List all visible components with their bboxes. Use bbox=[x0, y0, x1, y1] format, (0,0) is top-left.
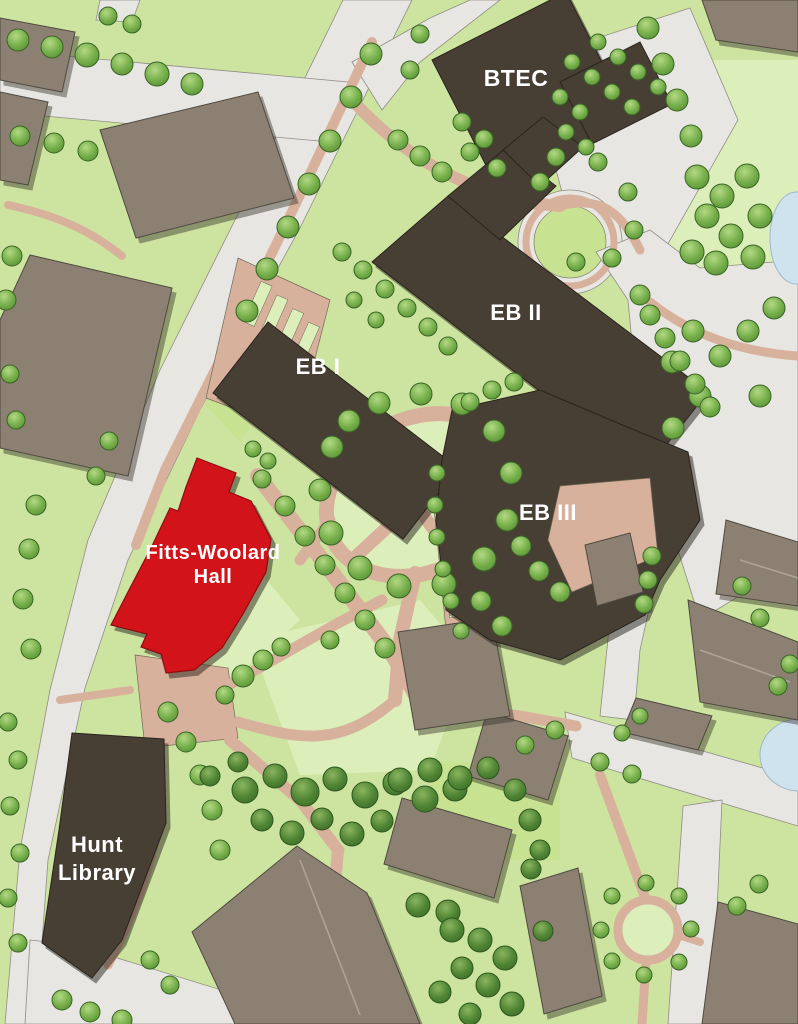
tree bbox=[401, 61, 419, 79]
tree bbox=[635, 595, 653, 613]
tree bbox=[418, 758, 442, 782]
tree bbox=[471, 591, 491, 611]
tree bbox=[751, 609, 769, 627]
tree bbox=[123, 15, 141, 33]
tree bbox=[546, 721, 564, 739]
tree bbox=[750, 875, 768, 893]
tree bbox=[338, 410, 360, 432]
tree bbox=[176, 732, 196, 752]
tree bbox=[643, 547, 661, 565]
tree bbox=[483, 420, 505, 442]
tree bbox=[680, 125, 702, 147]
tree bbox=[472, 547, 496, 571]
tree bbox=[461, 393, 479, 411]
tree bbox=[614, 725, 630, 741]
tree bbox=[516, 736, 534, 754]
tree bbox=[749, 385, 771, 407]
tree bbox=[476, 973, 500, 997]
tree bbox=[637, 17, 659, 39]
label-btec: BTEC bbox=[484, 65, 549, 91]
tree bbox=[652, 53, 674, 75]
tree bbox=[263, 764, 287, 788]
tree bbox=[505, 373, 523, 391]
tree bbox=[232, 665, 254, 687]
tree bbox=[321, 631, 339, 649]
tree bbox=[388, 768, 412, 792]
tree bbox=[202, 800, 222, 820]
tree bbox=[533, 921, 553, 941]
tree bbox=[232, 777, 258, 803]
campus-map: BTEC EB II EB I EB III Fitts-Woolard Hal… bbox=[0, 0, 798, 1024]
tree bbox=[710, 184, 734, 208]
tree bbox=[245, 441, 261, 457]
tree bbox=[623, 765, 641, 783]
tree bbox=[410, 146, 430, 166]
tree bbox=[639, 571, 657, 589]
tree bbox=[630, 285, 650, 305]
tree bbox=[295, 526, 315, 546]
tree bbox=[7, 411, 25, 429]
label-fitts-woolard-line1: Fitts-Woolard bbox=[145, 542, 280, 564]
tree bbox=[662, 417, 684, 439]
tree bbox=[1, 797, 19, 815]
tree bbox=[632, 708, 648, 724]
tree bbox=[1, 365, 19, 383]
label-eb1: EB I bbox=[296, 354, 341, 379]
tree bbox=[210, 840, 230, 860]
tree bbox=[236, 300, 258, 322]
tree bbox=[333, 243, 351, 261]
tree bbox=[519, 809, 541, 831]
tree bbox=[360, 43, 382, 65]
tree bbox=[10, 126, 30, 146]
tree bbox=[589, 153, 607, 171]
tree bbox=[298, 173, 320, 195]
tree bbox=[521, 859, 541, 879]
tree bbox=[719, 224, 743, 248]
tree bbox=[291, 778, 319, 806]
tree bbox=[251, 809, 273, 831]
tree bbox=[636, 967, 652, 983]
tree bbox=[346, 292, 362, 308]
tree bbox=[429, 981, 451, 1003]
tree bbox=[260, 453, 276, 469]
tree bbox=[737, 320, 759, 342]
tree bbox=[309, 479, 331, 501]
building bbox=[702, 902, 798, 1024]
tree bbox=[619, 183, 637, 201]
tree bbox=[604, 953, 620, 969]
tree bbox=[500, 462, 522, 484]
tree bbox=[461, 143, 479, 161]
tree bbox=[578, 139, 594, 155]
tree bbox=[763, 297, 785, 319]
tree bbox=[709, 345, 731, 367]
tree bbox=[75, 43, 99, 67]
tree bbox=[682, 320, 704, 342]
tree bbox=[638, 875, 654, 891]
tree bbox=[429, 529, 445, 545]
tree bbox=[200, 766, 220, 786]
tree bbox=[504, 779, 526, 801]
tree bbox=[256, 258, 278, 280]
tree bbox=[368, 392, 390, 414]
tree bbox=[685, 165, 709, 189]
tree bbox=[666, 89, 688, 111]
tree bbox=[488, 159, 506, 177]
tree bbox=[427, 497, 443, 513]
tree bbox=[741, 245, 765, 269]
tree bbox=[453, 623, 469, 639]
tree bbox=[650, 79, 666, 95]
tree bbox=[558, 124, 574, 140]
tree bbox=[87, 467, 105, 485]
tree bbox=[547, 148, 565, 166]
label-eb3: EB III bbox=[519, 500, 577, 525]
tree bbox=[572, 104, 588, 120]
tree bbox=[700, 397, 720, 417]
tree bbox=[319, 130, 341, 152]
tree bbox=[0, 290, 16, 310]
tree bbox=[781, 655, 798, 673]
tree bbox=[253, 650, 273, 670]
tree bbox=[769, 677, 787, 695]
tree bbox=[26, 495, 46, 515]
tree bbox=[500, 992, 524, 1016]
tree bbox=[181, 73, 203, 95]
tree bbox=[9, 751, 27, 769]
tree bbox=[371, 810, 393, 832]
campus-map-svg: BTEC EB II EB I EB III Fitts-Woolard Hal… bbox=[0, 0, 798, 1024]
tree bbox=[375, 638, 395, 658]
tree bbox=[564, 54, 580, 70]
tree bbox=[593, 922, 609, 938]
tree bbox=[493, 946, 517, 970]
tree bbox=[319, 521, 343, 545]
tree bbox=[335, 583, 355, 603]
tree bbox=[406, 893, 430, 917]
tree bbox=[432, 162, 452, 182]
tree bbox=[410, 383, 432, 405]
tree bbox=[448, 766, 472, 790]
tree bbox=[321, 436, 343, 458]
tree bbox=[21, 639, 41, 659]
tree bbox=[80, 1002, 100, 1022]
tree bbox=[388, 130, 408, 150]
tree bbox=[311, 808, 333, 830]
tree bbox=[280, 821, 304, 845]
tree bbox=[584, 69, 600, 85]
tree bbox=[277, 216, 299, 238]
tree bbox=[671, 888, 687, 904]
tree bbox=[492, 616, 512, 636]
tree bbox=[0, 713, 17, 731]
tree bbox=[477, 757, 499, 779]
tree bbox=[733, 577, 751, 595]
tree bbox=[529, 561, 549, 581]
tree bbox=[52, 990, 72, 1010]
tree bbox=[552, 89, 568, 105]
tree bbox=[483, 381, 501, 399]
tree bbox=[603, 249, 621, 267]
tree bbox=[567, 253, 585, 271]
tree bbox=[704, 251, 728, 275]
tree bbox=[216, 686, 234, 704]
tree bbox=[695, 204, 719, 228]
tree bbox=[111, 53, 133, 75]
tree bbox=[7, 29, 29, 51]
tree bbox=[670, 351, 690, 371]
tree bbox=[610, 49, 626, 65]
tree bbox=[630, 64, 646, 80]
tree bbox=[604, 84, 620, 100]
tree bbox=[100, 432, 118, 450]
tree bbox=[9, 934, 27, 952]
tree bbox=[685, 374, 705, 394]
tree bbox=[655, 328, 675, 348]
tree bbox=[429, 465, 445, 481]
label-eb2: EB II bbox=[490, 300, 541, 325]
tree bbox=[145, 62, 169, 86]
tree bbox=[625, 221, 643, 239]
tree bbox=[435, 561, 451, 577]
tree bbox=[439, 337, 457, 355]
tree bbox=[44, 133, 64, 153]
tree bbox=[348, 556, 372, 580]
tree bbox=[728, 897, 746, 915]
tree bbox=[275, 496, 295, 516]
tree bbox=[683, 921, 699, 937]
tree bbox=[411, 25, 429, 43]
tree bbox=[78, 141, 98, 161]
tree bbox=[13, 589, 33, 609]
tree bbox=[531, 173, 549, 191]
tree bbox=[440, 918, 464, 942]
tree bbox=[323, 767, 347, 791]
tree bbox=[530, 840, 550, 860]
tree bbox=[99, 7, 117, 25]
tree bbox=[624, 99, 640, 115]
tree bbox=[640, 305, 660, 325]
tree bbox=[671, 954, 687, 970]
tree bbox=[368, 312, 384, 328]
tree bbox=[590, 34, 606, 50]
tree bbox=[158, 702, 178, 722]
tree bbox=[19, 539, 39, 559]
tree bbox=[354, 261, 372, 279]
label-fitts-woolard-line2: Hall bbox=[194, 566, 233, 588]
tree bbox=[680, 240, 704, 264]
tree bbox=[748, 204, 772, 228]
tree bbox=[376, 280, 394, 298]
tree bbox=[451, 957, 473, 979]
tree bbox=[511, 536, 531, 556]
tree bbox=[0, 889, 17, 907]
tree bbox=[475, 130, 493, 148]
tree bbox=[272, 638, 290, 656]
tree bbox=[355, 610, 375, 630]
tree bbox=[604, 888, 620, 904]
tree bbox=[41, 36, 63, 58]
tree bbox=[419, 318, 437, 336]
tree bbox=[591, 753, 609, 771]
tree bbox=[398, 299, 416, 317]
label-hunt-line2: Library bbox=[58, 860, 136, 885]
tree bbox=[340, 822, 364, 846]
tree bbox=[550, 582, 570, 602]
tree bbox=[315, 555, 335, 575]
tree bbox=[468, 928, 492, 952]
tree bbox=[459, 1003, 481, 1024]
tree bbox=[340, 86, 362, 108]
tree bbox=[253, 470, 271, 488]
tree bbox=[11, 844, 29, 862]
label-hunt-line1: Hunt bbox=[71, 832, 123, 857]
tree bbox=[2, 246, 22, 266]
tree bbox=[735, 164, 759, 188]
tree bbox=[443, 593, 459, 609]
tree bbox=[453, 113, 471, 131]
tree bbox=[141, 951, 159, 969]
tree bbox=[387, 574, 411, 598]
tree bbox=[412, 786, 438, 812]
tree bbox=[161, 976, 179, 994]
tree bbox=[496, 509, 518, 531]
tree bbox=[352, 782, 378, 808]
tree bbox=[228, 752, 248, 772]
